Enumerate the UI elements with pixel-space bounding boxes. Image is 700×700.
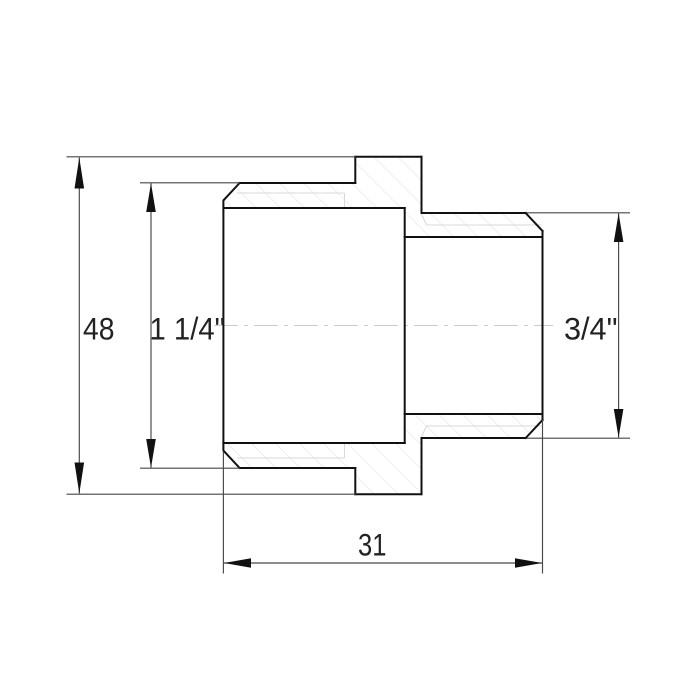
svg-text:48: 48 (83, 311, 115, 347)
svg-text:31: 31 (358, 527, 387, 563)
svg-text:1 1/4": 1 1/4" (150, 311, 226, 347)
svg-text:3/4": 3/4" (564, 311, 618, 347)
